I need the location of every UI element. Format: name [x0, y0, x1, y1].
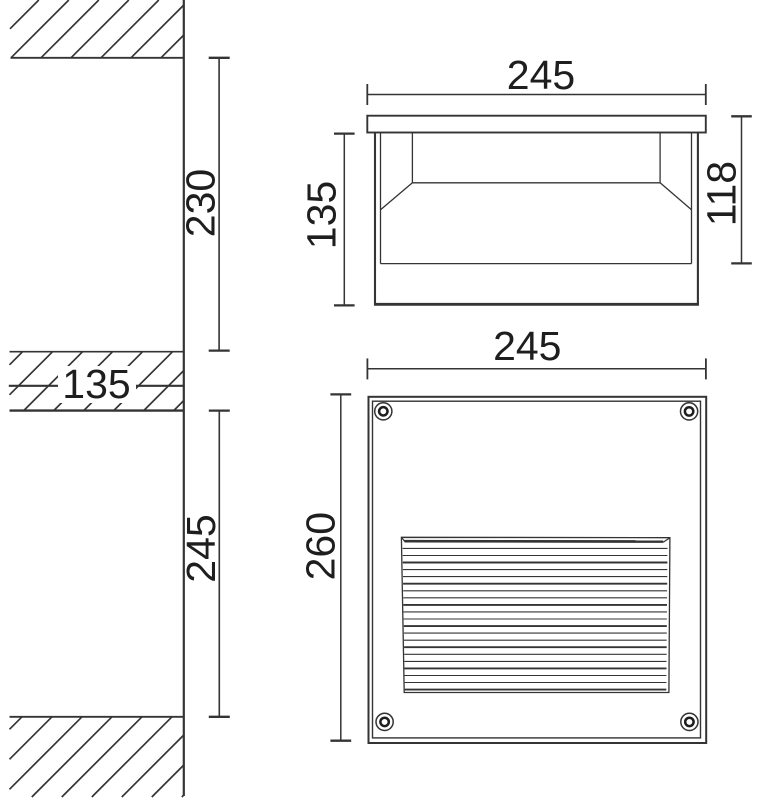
svg-text:245: 245: [493, 323, 561, 369]
svg-text:135: 135: [62, 361, 130, 407]
svg-text:260: 260: [297, 512, 343, 580]
svg-text:245: 245: [178, 514, 224, 582]
svg-text:135: 135: [298, 181, 344, 249]
svg-text:118: 118: [699, 161, 745, 226]
svg-text:230: 230: [178, 169, 224, 237]
svg-text:245: 245: [507, 52, 575, 98]
